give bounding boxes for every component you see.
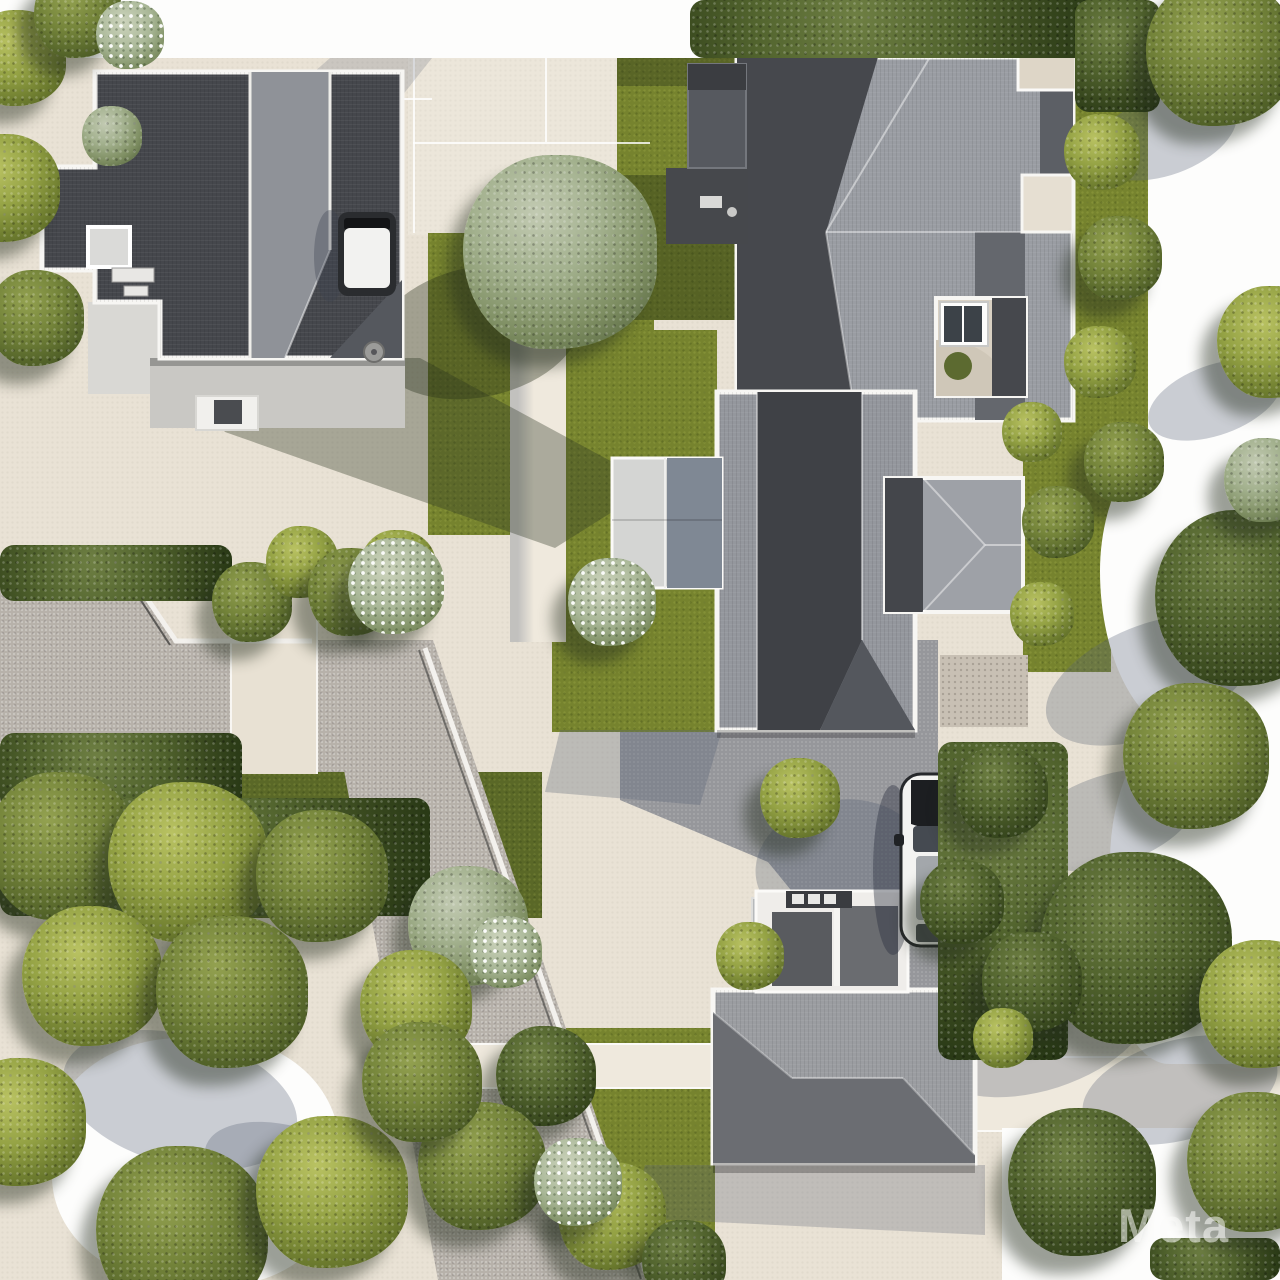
house1-door [214,400,242,424]
garden-shed [666,64,748,244]
tree [0,270,84,366]
garden-table-center [371,349,377,355]
tree [82,106,142,166]
house2-courtyard [936,298,1026,396]
car1-roof [344,228,390,288]
bush [1064,114,1140,190]
house2-roof-notch [1022,175,1073,232]
tree [22,906,162,1046]
house-top-right [737,6,1076,420]
bush [716,922,784,990]
wing-roof-dark [885,478,923,612]
tree [1123,683,1269,829]
house1-side-wall [88,302,160,394]
entrance-mullion [834,906,840,986]
tree [156,916,308,1068]
house1-skylight [88,227,130,267]
shed-roof-band [688,64,746,90]
house4-eave-shadow [713,1163,975,1173]
tree [362,1022,482,1142]
house1-rooftop-bench [124,286,148,296]
tree [256,810,388,942]
bush [956,746,1048,838]
vent-cell [824,894,836,904]
aerial-render-scene: Meta [0,0,1280,1280]
house1-front-wall [150,358,405,428]
bush [1002,402,1062,462]
suv-mirror [894,834,904,846]
bush [920,860,1004,944]
bush [1010,582,1074,646]
courtyard-wall [992,298,1026,396]
flower-bush [470,916,542,988]
house3-eave-shadow [717,730,915,738]
flower-bush [348,538,444,634]
flower-bush [96,1,164,69]
bush [1078,216,1162,300]
house1-rooftop-bench [112,268,154,282]
bush [1084,422,1164,502]
flower-bush [568,558,656,646]
patio-chair [727,207,737,217]
hedge-top [690,0,1105,58]
house-middle-right [717,392,1023,738]
vent-cell [808,894,820,904]
carport-panel-half [667,458,722,588]
bush [973,1008,1033,1068]
vent-cell [792,894,804,904]
patio-table [700,196,722,208]
bush [760,758,840,838]
flower-bush [534,1138,622,1226]
house3-right-wing [885,478,1023,612]
watermark: Meta [1118,1198,1229,1253]
tree [256,1116,408,1268]
courtyard-window-pane [964,306,982,342]
bush [1064,326,1136,398]
house-bottom [713,990,975,1173]
big-sage-tree [463,155,657,349]
courtyard-window-pane [944,306,962,342]
car-by-top-left-house [314,210,396,302]
bush [1022,486,1094,558]
hedge-street-top [0,545,232,601]
courtyard-plant [944,352,972,380]
